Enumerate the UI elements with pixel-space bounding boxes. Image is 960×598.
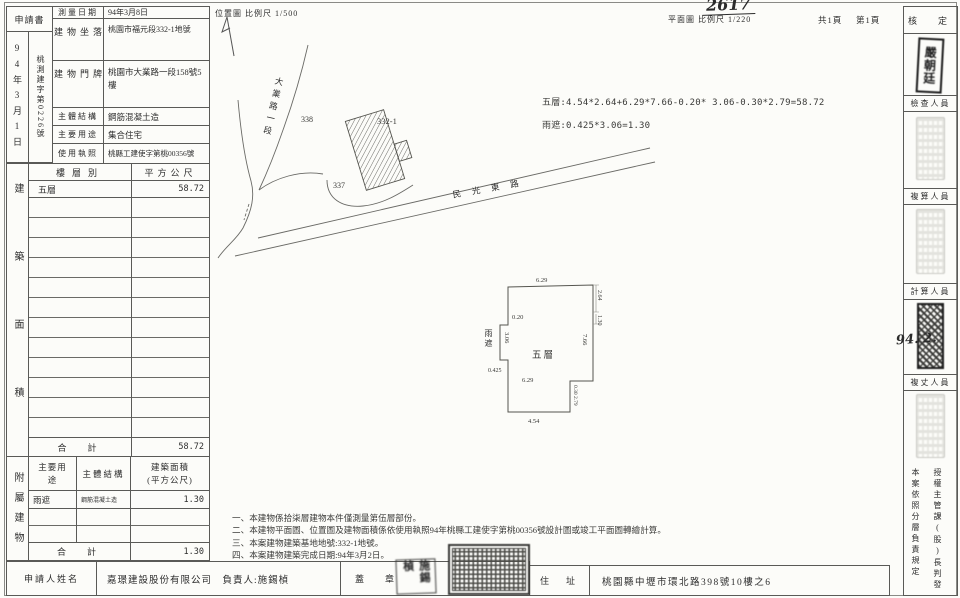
door-value: 桃園市大業路一段158號5樓 (103, 60, 210, 108)
recalc-stamp (916, 209, 945, 274)
applicant-name-label: 申請人姓名 (6, 561, 97, 596)
recalc-label: 複算人員 (903, 188, 958, 205)
pages-total: 共1頁 (818, 14, 842, 26)
annex-col-structure: 主體結構 (76, 456, 131, 491)
annex-divider-1 (76, 508, 77, 543)
license-label: 使用執照 (52, 143, 104, 164)
floor-area-side-label: 建築面積 (6, 163, 29, 457)
receipt-doc-label: 申請書 (6, 6, 53, 32)
road-tick (244, 204, 249, 220)
dim-canopy: 0.425 (488, 368, 502, 374)
floor-total-value: 58.72 (131, 437, 210, 457)
calc-label: 計算人員 (903, 283, 958, 300)
receipt-file-no: 桃測建字第0226號 (28, 31, 53, 163)
page-current: 第1頁 (856, 14, 880, 26)
dim-right-top2: 1.30 (596, 315, 602, 326)
annex-row-structure: 鋼筋混凝土造 (76, 490, 131, 509)
structure-value: 鋼筋混凝土造 (103, 107, 210, 126)
parcel-337: 337 (333, 181, 345, 190)
resurvey-label: 複丈人員 (903, 374, 958, 391)
annex-col-area-line1: 建築面積 (151, 461, 189, 474)
col-floor: 樓層別 (28, 163, 132, 181)
company-seal (448, 544, 530, 595)
dim-right: 7.66 (581, 334, 588, 346)
annex-side-label: 附屬建物 (6, 456, 29, 561)
parcel-338: 338 (301, 115, 313, 124)
use-label: 主要用途 (52, 125, 104, 144)
site-value: 桃園市福元段332-1地號 (103, 18, 210, 61)
table-divider (131, 197, 132, 438)
annex-row-use: 雨遮 (28, 490, 77, 509)
floor-row-label: 五層 (28, 180, 132, 198)
license-value: 桃縣工建使字第桃00356號 (103, 143, 210, 164)
annex-col-area-line2: (平方公尺) (147, 474, 193, 487)
delegation-right: 授權主管課(股)長判發 (932, 468, 943, 592)
survey-sheet: 申請書 94年3月1日 桃測建字第0226號 測量日期 94年3月8日 建物坐落… (0, 0, 960, 598)
approve-label: 核 定 (903, 6, 958, 34)
empty-floor-rows (28, 197, 210, 438)
plan-scale-label: 平面圖 比例尺 1/220 (668, 14, 751, 25)
col-sqm: 平方公尺 (131, 163, 210, 181)
dim-right-top: 2.64 (596, 290, 602, 301)
addr-label: 住 址 (529, 565, 590, 596)
approver-stamp: 嚴朝廷 (916, 37, 945, 93)
dim-notch-w: 0.30 (572, 385, 578, 395)
site-plan: 338 332-1 337 (215, 38, 660, 266)
site-label: 建物坐落 (52, 18, 104, 61)
annex-total-label: 合 計 (28, 542, 131, 561)
annex-total-value: 1.30 (130, 542, 210, 561)
floor-plan: 6.29 0.20 3.06 0.425 五層 6.29 7.66 2.64 1… (470, 272, 630, 432)
annex-row-area: 1.30 (130, 490, 210, 509)
annex-col-area: 建築面積 (平方公尺) (130, 456, 210, 491)
canopy-label: 雨遮 (483, 329, 494, 349)
note-1: 一、本建物係拾柒層建物本件僅測量第伍層部份。 (232, 512, 744, 524)
handwritten-date: 94. 2. (896, 331, 938, 349)
check-label: 檢查人員 (903, 95, 958, 112)
use-value: 集合住宅 (103, 125, 210, 144)
structure-label: 主體結構 (52, 107, 104, 126)
applicant-name-value: 嘉璟建設股份有限公司 負責人:施錫楨 (96, 561, 341, 596)
responsible-person-seal: 施錫楨 (395, 558, 436, 594)
formula-floor: 五層:4.54*2.64+6.29*7.66-0.20* 3.06-0.30*2… (542, 95, 824, 108)
floor-total-label: 合 計 (28, 437, 132, 457)
driveway-left (259, 173, 323, 190)
check-stamp (916, 117, 945, 180)
dim-notch-h: 2.79 (572, 396, 578, 406)
dim-left: 3.06 (503, 332, 510, 344)
room-label: 五層 (532, 350, 555, 361)
addr-value: 桃園縣中壢市環北路398號10樓之6 (589, 565, 890, 596)
annex-empty-divider (28, 525, 210, 526)
parcel-332-1: 332-1 (377, 116, 397, 126)
door-label: 建物門牌 (52, 60, 104, 108)
floor-row-area: 58.72 (131, 180, 210, 198)
dim-top: 6.29 (536, 277, 547, 284)
receipt-date: 94年3月1日 (6, 31, 29, 163)
annex-col-use: 主要用途 (28, 456, 77, 491)
delegation-left: 本案依照分層負責規定 (910, 468, 921, 592)
road-edge-left (218, 100, 253, 258)
floor-outline (500, 285, 593, 412)
east-road-lower (235, 162, 655, 256)
dim-left-small: 0.20 (512, 314, 523, 321)
note-2: 二、本建物平面圖、位置圖及建物面積係依使用執照94年桃縣工建使字第桃00356號… (232, 524, 744, 536)
dim-bottom: 4.54 (528, 418, 540, 425)
formula-canopy: 雨遮:0.425*3.06=1.30 (542, 118, 650, 131)
resurvey-stamp (916, 394, 945, 458)
dim-inner: 6.29 (522, 377, 533, 384)
